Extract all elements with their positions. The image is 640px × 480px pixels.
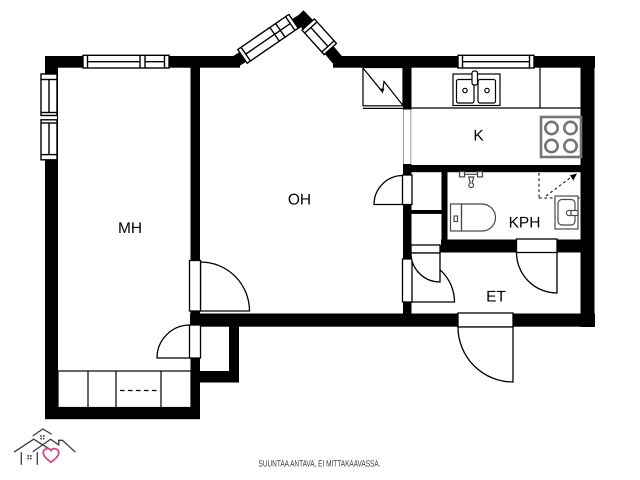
svg-text:ET: ET	[486, 289, 506, 306]
svg-text:OH: OH	[288, 192, 311, 209]
svg-text:KPH: KPH	[509, 214, 541, 231]
svg-text:SUUNTAA ANTAVA, EI MITTAKAAVAS: SUUNTAA ANTAVA, EI MITTAKAAVASSA.	[259, 459, 381, 469]
svg-text:K: K	[473, 127, 484, 144]
svg-text:MH: MH	[118, 220, 142, 237]
